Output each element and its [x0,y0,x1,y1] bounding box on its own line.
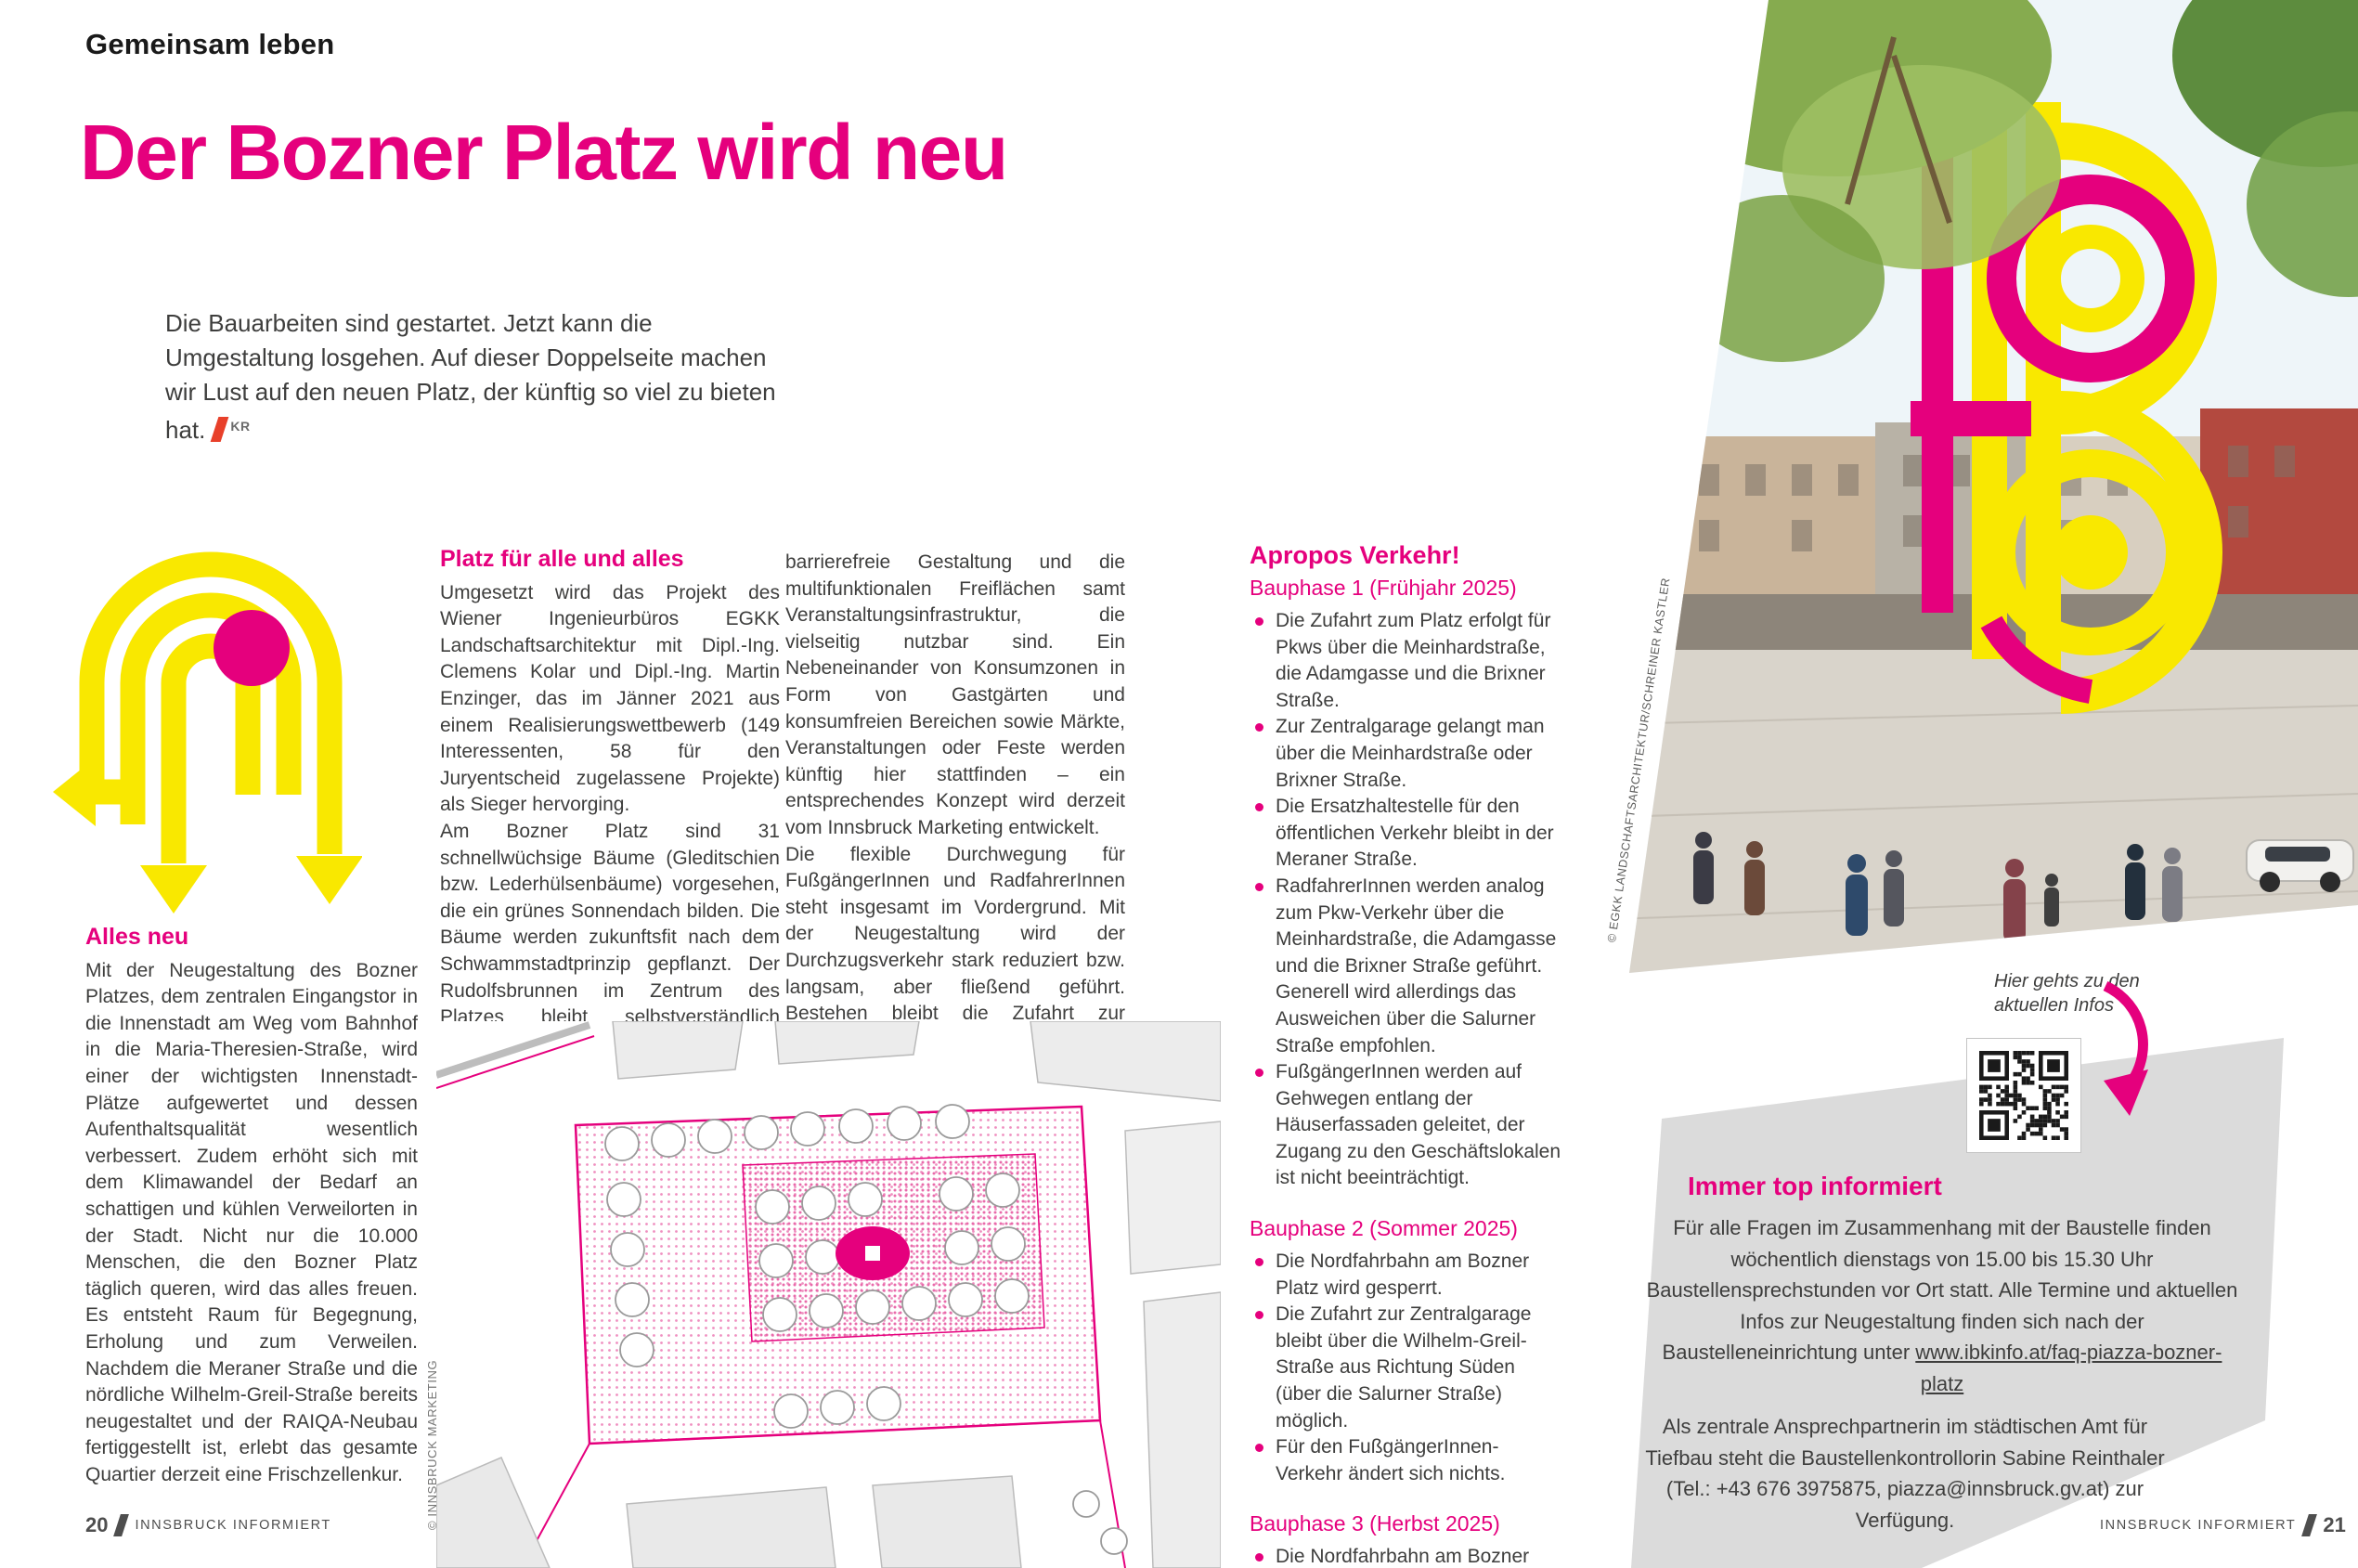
bauphase3-title: Bauphase 3 (Herbst 2025) [1250,1511,1565,1536]
fountain-marker [836,1226,910,1280]
curved-arrow-icon [2091,980,2157,1120]
list-item: Die Zufahrt zur Zentralgarage bleibt übe… [1250,1302,1565,1434]
bauphase3-list: Die Nordfahrbahn am Bozner Platz ist in … [1250,1544,1565,1568]
list-item: Die Zufahrt zum Platz erfolgt für Pkws ü… [1250,608,1565,714]
col3-para1: barrierefreie Gestaltung und die multifu… [785,550,1125,842]
footer-label-right: INNSBRUCK INFORMIERT [2100,1518,2296,1533]
qr-code [1979,1051,2068,1140]
bauphase2-list: Die Nordfahrbahn am Bozner Platz wird ge… [1250,1249,1565,1487]
list-item: Für den FußgängerInnen-Verkehr ändert si… [1250,1434,1565,1487]
column-verkehr: Apropos Verkehr! Bauphase 1 (Frühjahr 20… [1250,541,1565,1568]
intro-text: Die Bauarbeiten sind gestartet. Jetzt ka… [165,309,776,444]
footer-right: INNSBRUCK INFORMIERT 21 [2100,1513,2346,1537]
footer-slash-icon [2301,1514,2317,1536]
page-title: Der Bozner Platz wird neu [80,108,1007,198]
intro-paragraph: Die Bauarbeiten sind gestartet. Jetzt ka… [165,306,789,447]
bauphase2-title: Bauphase 2 (Sommer 2025) [1250,1216,1565,1241]
alles-neu-heading: Alles neu [85,924,418,951]
list-item: Die Nordfahrbahn am Bozner Platz wird ge… [1250,1249,1565,1302]
column-continuation: barrierefreie Gestaltung und die multifu… [785,550,1125,1081]
list-item: Die Nordfahrbahn am Bozner Platz ist in … [1250,1544,1565,1568]
platz-heading: Platz für alle und alles [440,546,780,573]
rendering-scene [1615,0,2358,998]
magazine-spread: Gemeinsam leben Der Bozner Platz wird ne… [0,0,2358,1568]
list-item: Die Ersatzhaltestelle für den öffentlich… [1250,794,1565,874]
pictogram-dot [214,610,290,686]
info-paragraph-2: Als zentrale Ansprechpartnerin im städti… [1645,1411,2165,1536]
column-platz: Platz für alle und alles Umgesetzt wird … [440,546,780,1057]
red-slash-icon [211,417,229,442]
ibkinfo-link[interactable]: www.ibkinfo.at/faq-piazza-bozner-platz [1915,1341,2222,1395]
bauphase1-list: Die Zufahrt zum Platz erfolgt für Pkws ü… [1250,608,1565,1192]
bauphase1-title: Bauphase 1 (Frühjahr 2025) [1250,576,1565,601]
list-item: Zur Zentralgarage gelangt man über die M… [1250,714,1565,794]
qr-card [1966,1038,2081,1153]
verkehr-heading: Apropos Verkehr! [1250,541,1565,570]
page-number-left: 20 [85,1513,108,1537]
map-credit: © INNSBRUCK MARKETING [425,1360,439,1530]
bozner-platz-pictogram-icon [51,546,362,919]
info-heading: Immer top informiert [1688,1172,1942,1201]
list-item: RadfahrerInnen werden analog zum Pkw-Ver… [1250,874,1565,1059]
rendering-photo [1615,0,2358,998]
platz-para1: Umgesetzt wird das Projekt des Wiener In… [440,580,780,819]
section-kicker: Gemeinsam leben [85,28,334,61]
footer-left: 20 INNSBRUCK INFORMIERT [85,1513,331,1537]
site-plan-map [436,1021,1221,1568]
column-alles-neu: Alles neu Mit der Neugestaltung des Bozn… [85,924,418,1488]
list-item: FußgängerInnen werden auf Gehwegen entla… [1250,1059,1565,1192]
page-number-right: 21 [2323,1513,2345,1537]
alles-neu-body: Mit der Neugestaltung des Bozner Platzes… [85,958,418,1489]
footer-label-left: INNSBRUCK INFORMIERT [135,1518,330,1533]
info-paragraph-1: Für alle Fragen im Zusammenhang mit der … [1641,1212,2243,1399]
footer-slash-icon [114,1514,130,1536]
author-initials: KR [230,419,250,434]
